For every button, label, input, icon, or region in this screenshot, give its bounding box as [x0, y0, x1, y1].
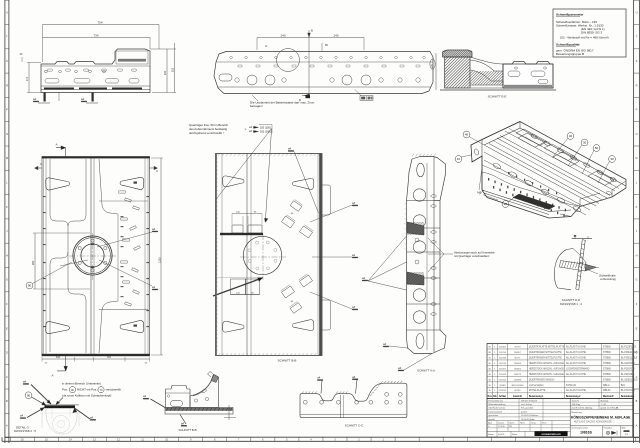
svg-text:113616: 113616 [499, 390, 507, 392]
svg-text:240: 240 [280, 34, 285, 38]
svg-text:A: A [52, 374, 54, 378]
svg-text:ALLFLAST 0-KOHE: ALLFLAST 0-KOHE [566, 351, 586, 354]
svg-text:MASSSTAB 2 : 5: MASSSTAB 2 : 5 [14, 429, 36, 433]
svg-text:Name: Name [509, 422, 514, 424]
svg-text:128985: 128985 [514, 379, 522, 381]
svg-text:QUERTRÄGER MITTELPLATTE: QUERTRÄGER MITTELPLATTE [529, 356, 562, 359]
svg-text:a4: a4 [20, 414, 24, 418]
svg-text:30: 30 [583, 141, 587, 145]
svg-text:BL-S1187003: BL-S1187003 [621, 363, 635, 365]
svg-text:3801016480: 3801016480 [511, 385, 524, 387]
svg-text:a4: a4 [317, 376, 321, 380]
svg-text:MITTELPLATTE: MITTELPLATTE [529, 389, 546, 392]
svg-text:734: 734 [93, 34, 98, 38]
svg-text:Artikel: Artikel [499, 395, 507, 398]
svg-text:WBL60: WBL60 [603, 390, 611, 392]
svg-text:erstellt 1.09.11 klobsnig: erstellt 1.09.11 klobsnig [571, 407, 592, 410]
svg-text:G: G [6, 278, 8, 282]
svg-text:LOCHFENSTERWAND: LOCHFENSTERWAND [566, 367, 590, 370]
svg-text:A: A [6, 424, 8, 428]
svg-text:R: R [636, 83, 638, 87]
svg-text:a4: a4 [143, 394, 147, 398]
svg-text:Pos.: Pos. [62, 388, 68, 392]
svg-text:(S2 - Werkstoff mit Re = 460 N: (S2 - Werkstoff mit Re = 460 N/mm²) [560, 36, 609, 40]
svg-text:ST5860: ST5860 [603, 352, 612, 354]
svg-text:BL-S23E11Z3L5: BL-S23E11Z3L5 [621, 379, 638, 381]
svg-text:MASSSTAB 1 : 2: MASSSTAB 1 : 2 [560, 302, 582, 306]
svg-text:S: S [6, 59, 8, 63]
svg-text:a4: a4 [362, 276, 366, 280]
svg-text:U: U [6, 10, 8, 14]
svg-text:in diesem Bereich (Unterseite): in diesem Bereich (Unterseite) [62, 381, 101, 385]
svg-text:100 (100): 100 (100) [260, 126, 271, 129]
svg-text:Abstützungen auch auf Untersei: Abstützungen auch auf Unterseite [454, 251, 495, 255]
svg-text:a4: a4 [33, 97, 37, 101]
svg-text:B: B [6, 399, 8, 403]
svg-text:102786: 102786 [499, 357, 507, 359]
svg-text:a4: a4 [23, 380, 27, 384]
svg-text:>: > [245, 127, 247, 131]
svg-text:ST5860: ST5860 [603, 379, 612, 381]
svg-text:ST5860: ST5860 [603, 357, 612, 359]
svg-text:16489: 16489 [499, 385, 506, 387]
svg-text:G: G [635, 278, 637, 282]
svg-text:BL-P215186L: BL-P215186L [621, 374, 636, 376]
svg-text:R: R [6, 83, 8, 87]
svg-text:40: 40 [465, 133, 469, 137]
svg-text:108073: 108073 [514, 374, 522, 376]
svg-text:SCHNITT B-B: SCHNITT B-B [179, 428, 197, 432]
svg-text:N: N [636, 132, 638, 136]
svg-text:ST5862: ST5862 [603, 346, 612, 348]
svg-text:Werkstoff: Werkstoff [603, 395, 614, 398]
svg-text:a4: a4 [398, 366, 402, 370]
svg-text:betragen!: betragen! [250, 104, 263, 108]
svg-text:a4: a4 [152, 227, 156, 231]
svg-text:90: 90 [28, 284, 32, 288]
svg-text:Schweißqualität: Schweißqualität [556, 43, 580, 47]
svg-text:BL-F23E11Z3L5: BL-F23E11Z3L5 [621, 357, 638, 359]
svg-text:ALLFLAST 0-KOHE: ALLFLAST 0-KOHE [566, 356, 586, 359]
svg-text:10816S: 10816S [580, 431, 592, 435]
svg-text:220: 220 [163, 70, 167, 75]
svg-text:(Schweißnaht-: (Schweißnaht- [599, 273, 616, 277]
svg-text:50: 50 [595, 146, 599, 150]
svg-text:QUERTR.PLATTE MITTELPLATTE: QUERTR.PLATTE MITTELPLATTE [529, 345, 565, 348]
svg-text:KÖNIGSZAPFENEINBAU M. AUFLAGE: KÖNIGSZAPFENEINBAU M. AUFLAGE [571, 414, 631, 419]
svg-text:BL-P7187103: BL-P7187103 [621, 390, 636, 392]
svg-text:ALLFLAST 0-KOHE: ALLFLAST 0-KOHE [566, 345, 586, 348]
svg-text:B: B [636, 399, 638, 403]
svg-text:ST5860: ST5860 [603, 374, 612, 376]
svg-text:H: H [6, 253, 8, 257]
svg-text:Lochverzapfen: Lochverzapfen [529, 384, 545, 387]
svg-text:90: 90 [27, 394, 31, 398]
svg-text:46771: 46771 [514, 357, 521, 359]
svg-text:100 (100): 100 (100) [260, 130, 271, 133]
svg-text:a4: a4 [352, 253, 356, 257]
svg-text:12.3.05: 12.3.05 [498, 426, 504, 428]
svg-text:113413: 113413 [499, 379, 507, 381]
svg-text:DIN 8559: SG 3: DIN 8559: SG 3 [581, 31, 603, 35]
svg-text:NICHT mit Pos.: NICHT mit Pos. [77, 388, 97, 392]
svg-text:geprüft: geprüft [489, 418, 496, 421]
svg-text:754: 754 [97, 21, 102, 25]
svg-text:E: E [6, 326, 8, 330]
svg-text:Kantenzustand: Kantenzustand [489, 410, 502, 413]
svg-text:BL-P123F1123: BL-P123F1123 [621, 346, 637, 348]
svg-text:a4: a4 [152, 285, 156, 289]
svg-text:BL-P1187013: BL-P1187013 [621, 368, 635, 370]
svg-text:SCHNITT B-B: SCHNITT B-B [278, 359, 297, 363]
svg-text:12.04.05 Pirklbauer: 12.04.05 Pirklbauer [521, 415, 539, 417]
svg-text:170: 170 [25, 76, 29, 81]
svg-text:HERZSTÜCK ANSCHL. AUFLAGE: HERZSTÜCK ANSCHL. AUFLAGE [529, 373, 565, 376]
svg-text:AUFLAST SACHS KONGERUJE: AUFLAST SACHS KONGERUJE [574, 420, 612, 424]
svg-text:Projektion: Projektion [604, 426, 612, 429]
svg-text:KATALOG: KATALOG [566, 384, 577, 387]
svg-text:HERZSTÜCK ANSCHL. AUFLAGE: HERZSTÜCK ANSCHL. AUFLAGE [529, 362, 565, 365]
svg-text:K: K [6, 205, 8, 209]
svg-text:verschweißt: verschweißt [106, 388, 122, 392]
svg-text:35779: 35779 [514, 346, 521, 348]
svg-text:a4: a4 [288, 147, 292, 151]
svg-text:Ers.f.: Ers.f. [542, 421, 547, 424]
svg-text:113218: 113218 [499, 363, 507, 365]
svg-text:C: C [6, 375, 8, 379]
svg-text:U: U [636, 10, 638, 14]
svg-text:280: 280 [31, 260, 35, 265]
svg-text:S: S [636, 59, 638, 63]
svg-text:Benennung 2: Benennung 2 [566, 396, 581, 398]
svg-text:20: 20 [504, 202, 508, 206]
svg-text:Datum: Datum [498, 421, 504, 424]
svg-text:Freimaßtoleranz: Freimaßtoleranz [489, 399, 504, 402]
svg-text:M: M [635, 156, 637, 160]
svg-text:214.5 kg: 214.5 kg [572, 404, 581, 406]
svg-text:QUERTRÄGER ZWISCH.: QUERTRÄGER ZWISCH. [529, 378, 555, 381]
svg-text:Datum: Datum [488, 433, 494, 436]
svg-text:113216: 113216 [499, 352, 507, 354]
svg-text:A: A [636, 424, 638, 428]
svg-text:Zeichnungsnummer: Zeichnungsnummer [571, 426, 588, 429]
svg-text:Bewertungsgruppe B: Bewertungsgruppe B [556, 52, 584, 56]
svg-text:252: 252 [171, 67, 175, 72]
svg-text:135802: 135802 [514, 368, 522, 370]
svg-text:106857: 106857 [514, 352, 522, 354]
svg-text:Änd.: Änd. [488, 421, 492, 424]
svg-text:Pos: Pos [488, 396, 493, 398]
svg-text:DIN ISO 2768-mK: DIN ISO 2768-mK [521, 400, 538, 402]
svg-text:geänd. 11.5.P01.AA: geänd. 11.5.P01.AA [601, 407, 619, 410]
svg-text:mit Querträger verschweißen!: mit Querträger verschweißen! [454, 254, 490, 258]
svg-text:M: M [6, 156, 8, 160]
svg-text:SCHNITT C-C: SCHNITT C-C [345, 424, 363, 428]
svg-text:Gewicht: Gewicht [513, 395, 522, 398]
svg-text:361: 361 [107, 356, 112, 359]
svg-text:gezeichnet: gezeichnet [489, 414, 499, 417]
svg-text:KTL-grundiert: KTL-grundiert [521, 407, 534, 410]
svg-text:B: B [311, 29, 313, 33]
svg-text:ST5860: ST5860 [603, 363, 612, 365]
svg-text:K: K [636, 205, 638, 209]
svg-text:Name: Name [512, 434, 517, 436]
svg-text:A: A [56, 143, 58, 147]
svg-text:833: 833 [56, 356, 61, 359]
svg-text:nach Zchng.: nach Zchng. [521, 404, 532, 406]
svg-text:a4: a4 [181, 421, 185, 425]
svg-text:1210: 1210 [158, 257, 162, 263]
svg-text:a4: a4 [81, 97, 85, 101]
svg-text:Blatt: Blatt [622, 426, 626, 429]
svg-text:Oberflächenschutz: Oberflächenschutz [489, 407, 506, 410]
svg-text:a4: a4 [352, 201, 356, 205]
svg-text:SCHWARZMÜLLER: SCHWARZMÜLLER [541, 433, 561, 436]
svg-text:Bemerkung: Bemerkung [621, 396, 634, 398]
svg-text:P: P [6, 108, 8, 112]
svg-text:ST5860: ST5860 [603, 368, 612, 370]
svg-text:Benennung: Benennung [571, 412, 581, 414]
svg-text:gratfrei: gratfrei [521, 410, 528, 413]
svg-text:H: H [636, 253, 638, 257]
svg-text:Benennung 1: Benennung 1 [529, 396, 544, 398]
svg-text:ALLFLAST 0-KOHE: ALLFLAST 0-KOHE [566, 373, 586, 376]
svg-text:E: E [636, 326, 638, 330]
svg-text:10: 10 [457, 157, 461, 161]
svg-text:113417: 113417 [499, 368, 507, 370]
svg-text:a4: a4 [383, 342, 387, 346]
svg-text:HERZSTÜCK ANSCHL. AUFLAGE: HERZSTÜCK ANSCHL. AUFLAGE [529, 367, 565, 370]
svg-text:Maßstab: Maßstab [601, 399, 610, 402]
svg-text:ALLFLAST 0-KOHE: ALLFLAST 0-KOHE [566, 362, 586, 365]
svg-text:30: 30 [610, 157, 614, 161]
svg-text:1 : 10: 1 : 10 [601, 404, 607, 406]
svg-text:a4: a4 [352, 305, 356, 309]
svg-text:46780: 46780 [514, 390, 521, 392]
svg-text:vorbereitung): vorbereitung) [600, 277, 616, 281]
svg-text:Gewicht: Gewicht [572, 399, 580, 402]
svg-text:BAL: BAL [621, 384, 626, 387]
svg-text:240: 240 [333, 34, 338, 38]
svg-text:(da sonst Kollision mit Schrau: (da sonst Kollision mit Schraubenkopf) [62, 394, 111, 398]
svg-text:N: N [6, 132, 8, 136]
svg-text:113419: 113419 [499, 374, 507, 376]
svg-text:Schweißparameter: Schweißparameter [556, 13, 584, 17]
svg-text:durchgehend verschweißt !: durchgehend verschweißt ! [189, 131, 224, 135]
svg-text:113262: 113262 [499, 346, 507, 348]
svg-text:40: 40 [569, 134, 573, 138]
svg-text:SCHNITT A-A: SCHNITT A-A [417, 369, 435, 373]
svg-text:a4: a4 [352, 375, 356, 379]
svg-text:QUERTRÄGER MITTELPLATTE: QUERTRÄGER MITTELPLATTE [529, 351, 562, 354]
svg-text:108405: 108405 [514, 363, 522, 365]
svg-text:Wärmebehandlung: Wärmebehandlung [489, 404, 506, 406]
svg-text:BL-P23E11Z3L5: BL-P23E11Z3L5 [621, 352, 638, 354]
svg-text:P: P [636, 108, 638, 112]
svg-text:Norm: Norm [520, 421, 525, 424]
svg-text:Urspr.: Urspr. [531, 421, 537, 424]
svg-text:WBLG: WBLG [603, 385, 610, 387]
svg-text:a4: a4 [90, 415, 94, 419]
svg-text:D: D [6, 351, 8, 355]
svg-text:SCHNITT E-E: SCHNITT E-E [488, 95, 507, 99]
svg-text:ALLFLAST 0-KOHE: ALLFLAST 0-KOHE [566, 389, 586, 392]
svg-text:4.04.05: 4.04.05 [498, 434, 504, 436]
